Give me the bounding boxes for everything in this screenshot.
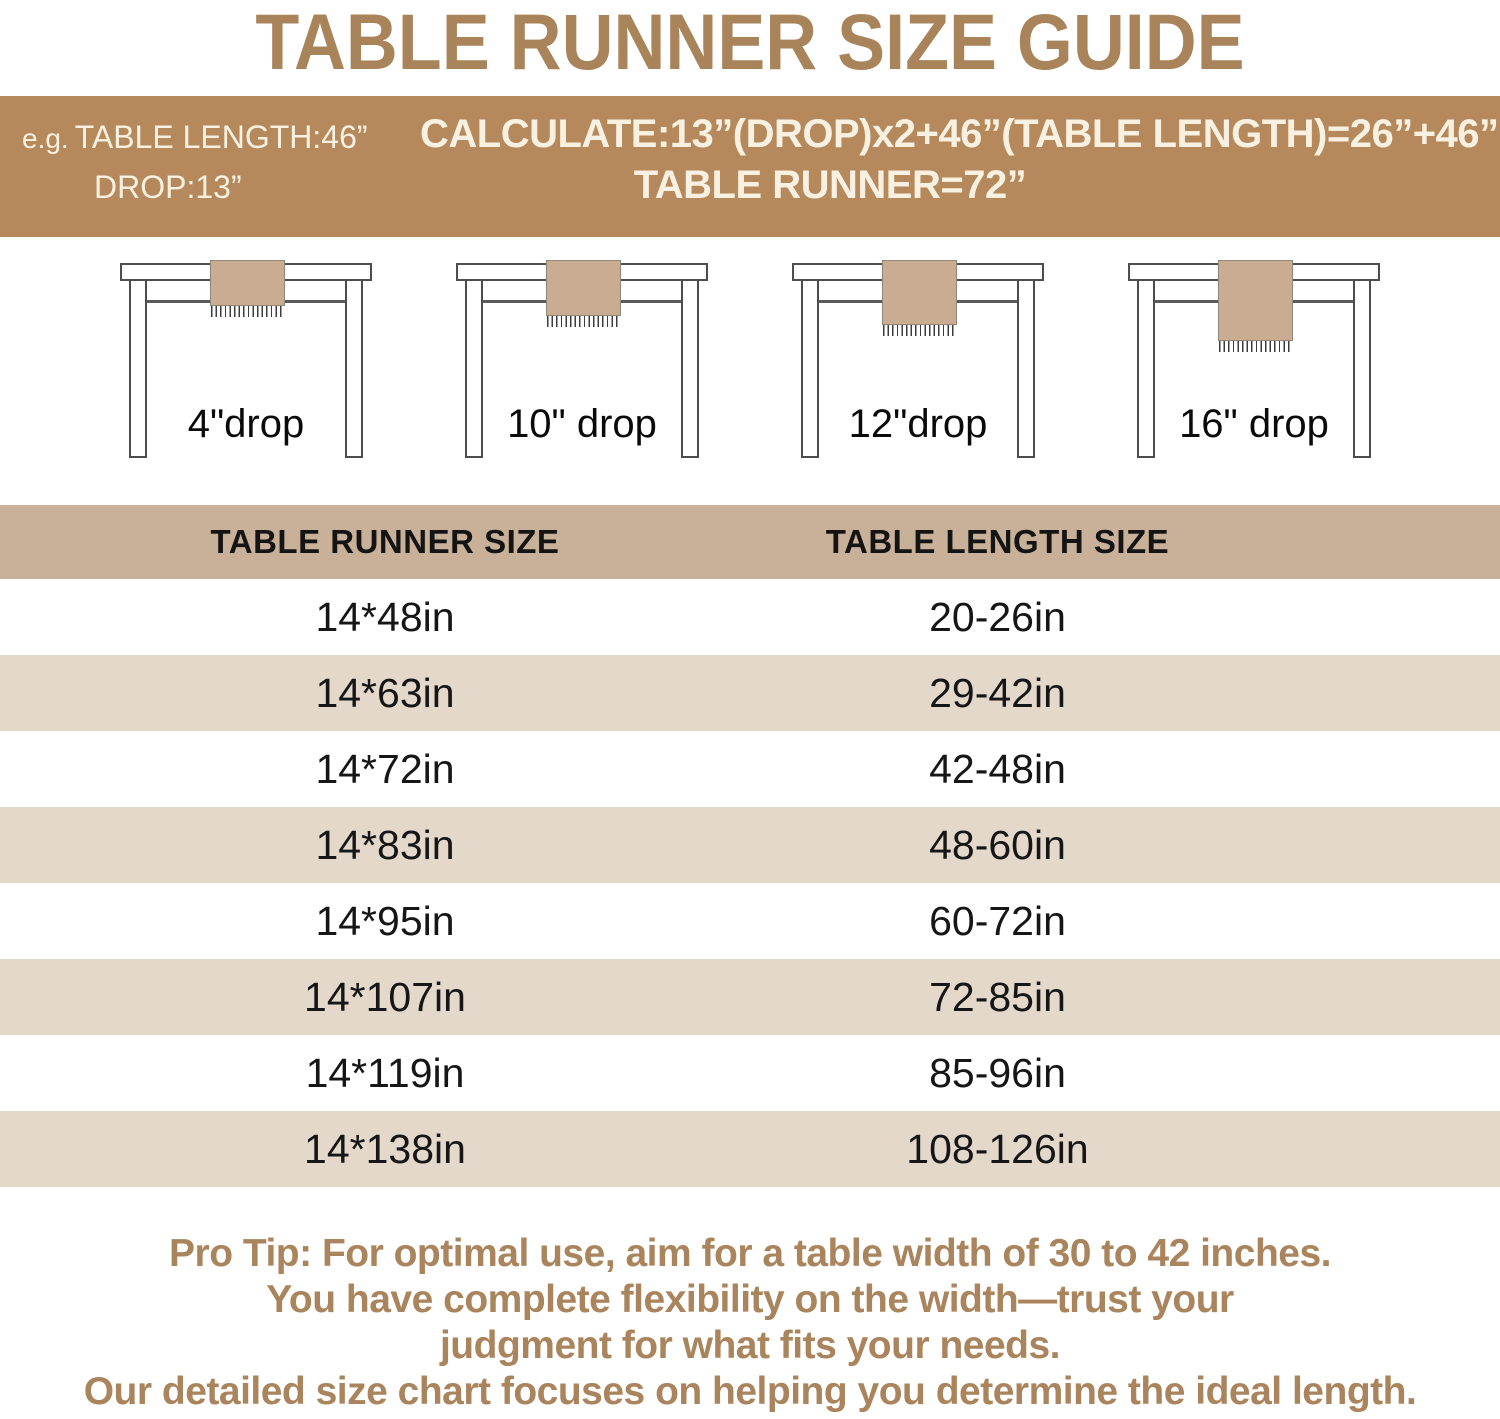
pro-tip-line: judgment for what fits your needs. xyxy=(0,1323,1500,1369)
runner-size-cell: 14*48in xyxy=(0,579,770,655)
runner-fringe xyxy=(547,316,620,327)
table-row: 14*48in 20-26in xyxy=(0,579,1500,655)
length-size-cell: 20-26in xyxy=(770,579,1225,655)
length-size-cell: 60-72in xyxy=(770,883,1225,959)
table-row: 14*107in 72-85in xyxy=(0,959,1500,1035)
table-row: 14*72in 42-48in xyxy=(0,731,1500,807)
pro-tip-line: You have complete flexibility on the wid… xyxy=(0,1277,1500,1323)
drop-label: 4"drop xyxy=(80,402,412,447)
runner-size-cell: 14*95in xyxy=(0,883,770,959)
length-size-cell: 108-126in xyxy=(770,1111,1225,1187)
runner-size-cell: 14*83in xyxy=(0,807,770,883)
runner-size-header: TABLE RUNNER SIZE xyxy=(0,505,770,579)
runner-size-cell: 14*72in xyxy=(0,731,770,807)
runner-size-cell: 14*107in xyxy=(0,959,770,1035)
size-guide-infographic: TABLE RUNNER SIZE GUIDE e.g.TABLE LENGTH… xyxy=(0,0,1500,1419)
table-runner-drape xyxy=(546,260,621,316)
page-title: TABLE RUNNER SIZE GUIDE xyxy=(68,0,1433,88)
pro-tip-line: Pro Tip: For optimal use, aim for a tabl… xyxy=(0,1231,1500,1277)
length-size-cell: 85-96in xyxy=(770,1035,1225,1111)
eg-label: e.g. xyxy=(22,123,69,154)
table-illustration: 4"drop xyxy=(120,263,372,459)
table-runner-drape xyxy=(1218,260,1293,341)
length-size-header: TABLE LENGTH SIZE xyxy=(770,505,1225,579)
runner-size-cell: 14*119in xyxy=(0,1035,770,1111)
length-size-cell: 29-42in xyxy=(770,655,1225,731)
table-illustration: 16" drop xyxy=(1128,263,1380,459)
runner-size-cell: 14*138in xyxy=(0,1111,770,1187)
calc-line-1: CALCULATE:13”(DROP)x2+46”(TABLE LENGTH)=… xyxy=(420,112,1480,157)
example-table-length: TABLE LENGTH:46” xyxy=(75,119,368,155)
example-banner: e.g.TABLE LENGTH:46” DROP:13” CALCULATE:… xyxy=(0,96,1500,237)
table-row: 14*63in 29-42in xyxy=(0,655,1500,731)
table-illustrations: 4"drop 10" drop 12"drop xyxy=(0,263,1500,463)
table-row: 14*95in 60-72in xyxy=(0,883,1500,959)
drop-label: 10" drop xyxy=(416,402,748,447)
length-size-cell: 48-60in xyxy=(770,807,1225,883)
table-illustration: 10" drop xyxy=(456,263,708,459)
size-table-header: TABLE RUNNER SIZE TABLE LENGTH SIZE xyxy=(0,505,1500,579)
pro-tip: Pro Tip: For optimal use, aim for a tabl… xyxy=(0,1231,1500,1415)
table-row: 14*138in 108-126in xyxy=(0,1111,1500,1187)
example-text: e.g.TABLE LENGTH:46” DROP:13” xyxy=(22,113,368,212)
table-row: 14*83in 48-60in xyxy=(0,807,1500,883)
size-table-body: 14*48in 20-26in 14*63in 29-42in 14*72in … xyxy=(0,579,1500,1187)
example-line-1: e.g.TABLE LENGTH:46” xyxy=(22,113,368,163)
table-runner-drape xyxy=(882,260,957,325)
size-table: TABLE RUNNER SIZE TABLE LENGTH SIZE 14*4… xyxy=(0,505,1500,1187)
calc-line-2: TABLE RUNNER=72” xyxy=(330,163,1330,208)
drop-label: 16" drop xyxy=(1088,402,1420,447)
runner-fringe xyxy=(1219,341,1292,352)
runner-fringe xyxy=(211,306,284,317)
table-row: 14*119in 85-96in xyxy=(0,1035,1500,1111)
table-runner-drape xyxy=(210,260,285,306)
length-size-cell: 42-48in xyxy=(770,731,1225,807)
table-illustration: 12"drop xyxy=(792,263,1044,459)
pro-tip-line: Our detailed size chart focuses on helpi… xyxy=(0,1369,1500,1415)
drop-label: 12"drop xyxy=(752,402,1084,447)
length-size-cell: 72-85in xyxy=(770,959,1225,1035)
runner-size-cell: 14*63in xyxy=(0,655,770,731)
example-line-2: DROP:13” xyxy=(94,163,368,212)
runner-fringe xyxy=(883,325,956,336)
